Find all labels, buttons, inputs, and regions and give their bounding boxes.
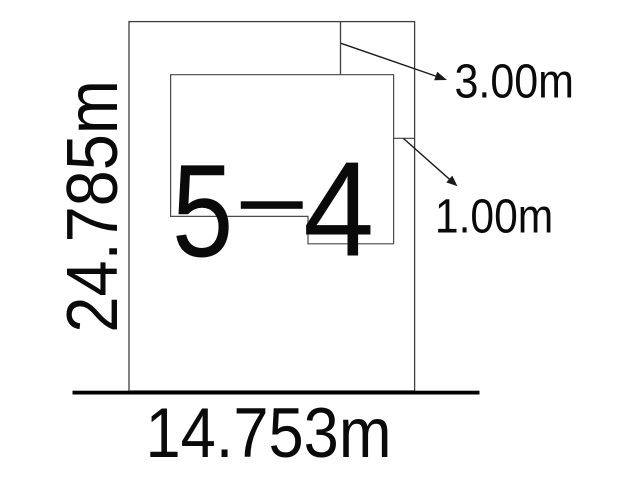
svg-text:24.785m: 24.785m xyxy=(52,80,133,333)
svg-text:5: 5 xyxy=(172,137,233,284)
svg-text:3.00m: 3.00m xyxy=(455,54,575,108)
svg-text:14.753m: 14.753m xyxy=(146,393,392,472)
svg-text:4: 4 xyxy=(303,134,374,285)
svg-text:1.00m: 1.00m xyxy=(435,190,553,244)
